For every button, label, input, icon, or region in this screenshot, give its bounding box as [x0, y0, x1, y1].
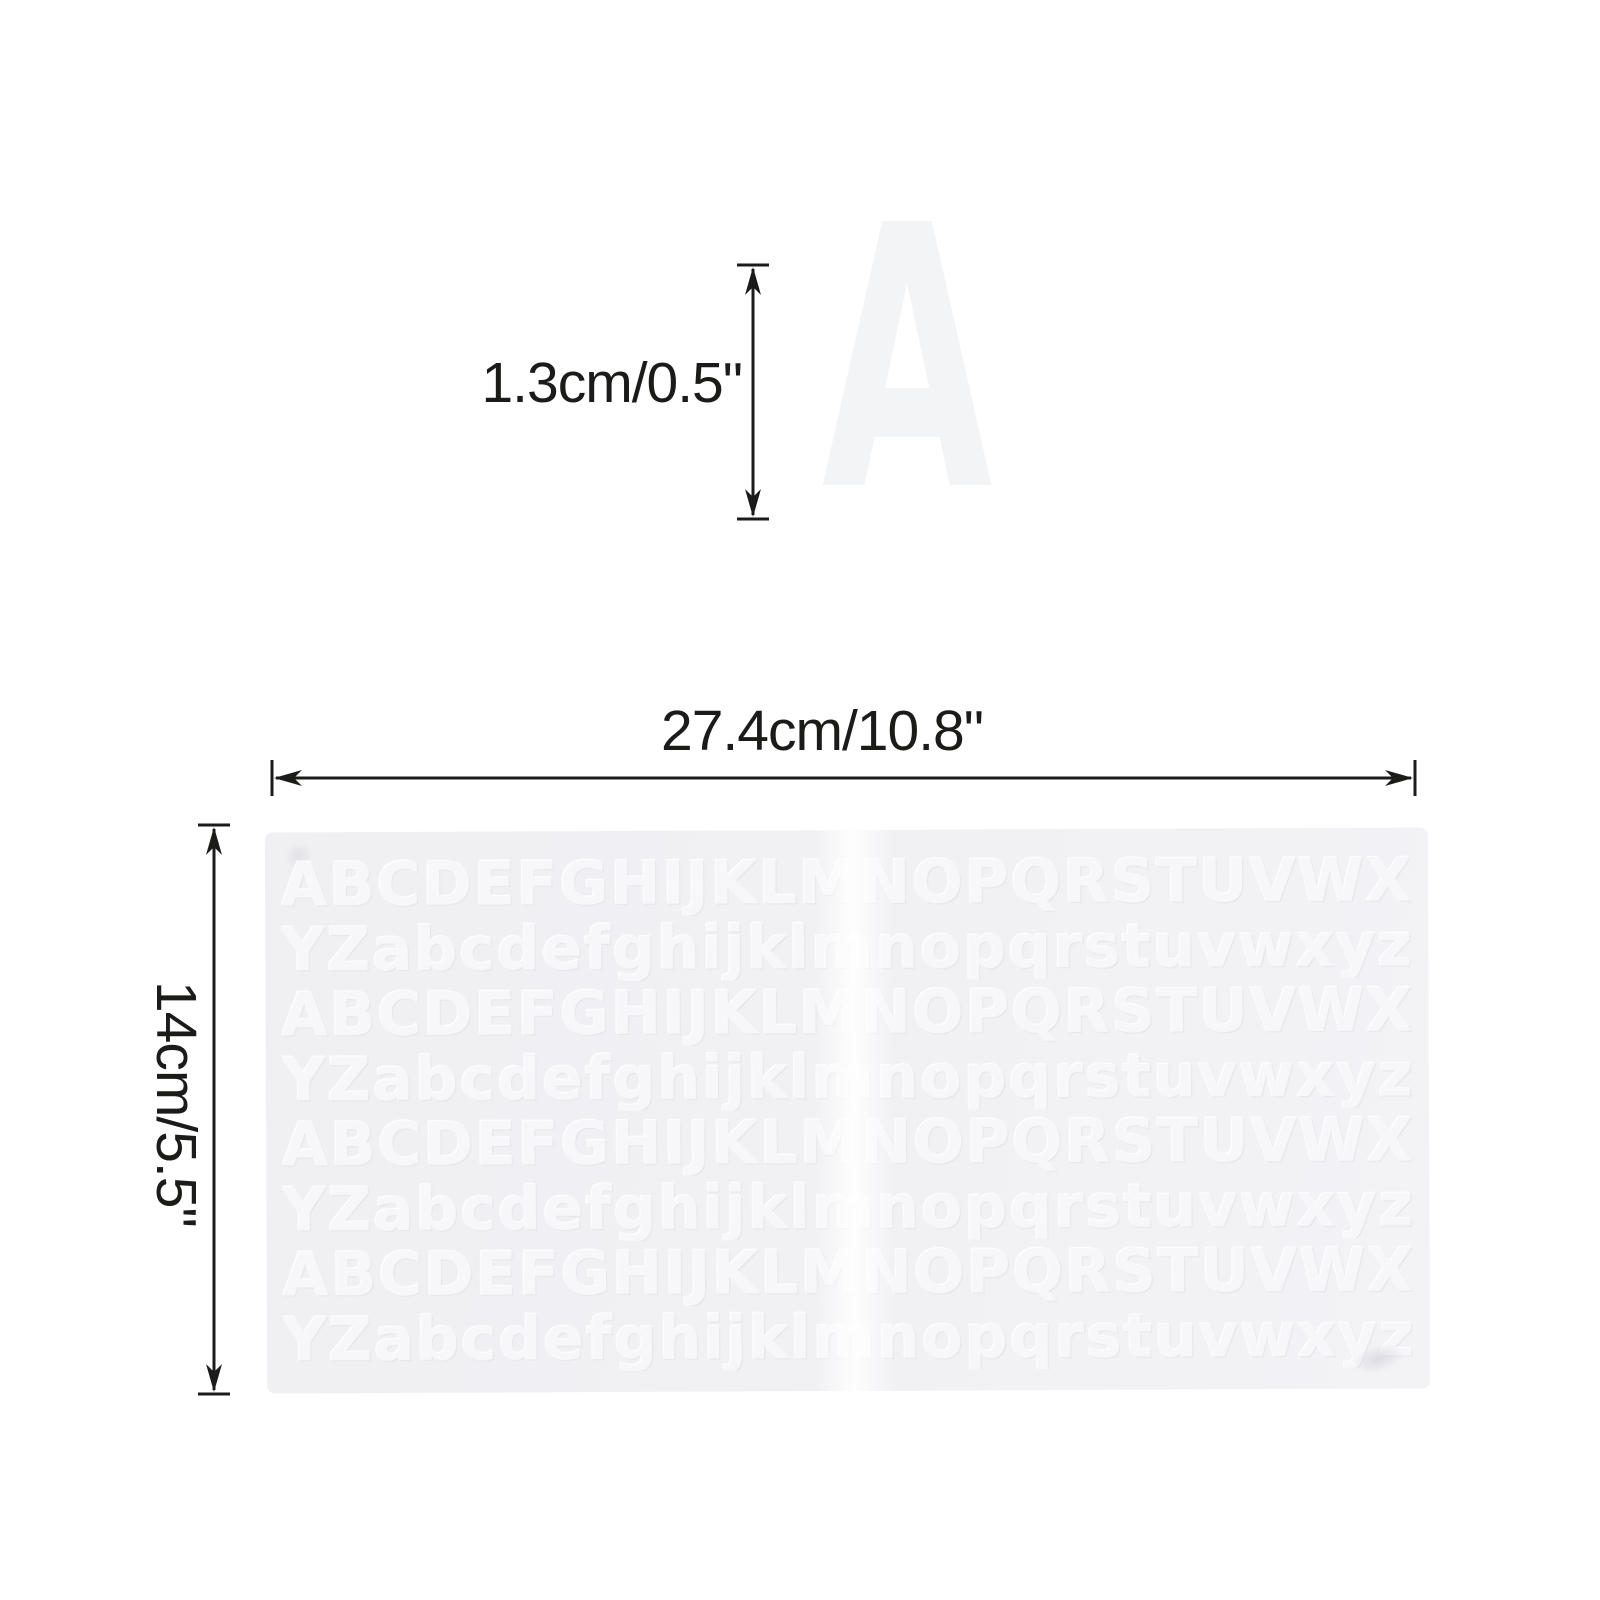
- sticker-letter: d: [497, 919, 540, 979]
- sticker-letter: V: [1250, 1111, 1297, 1171]
- sticker-letter: i: [703, 1308, 724, 1368]
- sticker-letter: N: [862, 1242, 912, 1302]
- sticker-letter: a: [373, 1049, 414, 1109]
- sticker-letter: M: [800, 1112, 860, 1172]
- sticker-letter: N: [860, 852, 910, 912]
- sticker-letter: P: [966, 1112, 1010, 1172]
- sticker-letter: m: [811, 917, 874, 977]
- sticker-letter: K: [711, 983, 758, 1043]
- sticker-letter: N: [861, 982, 911, 1042]
- sticker-letter: x: [1297, 1305, 1336, 1365]
- sticker-letter: o: [921, 1047, 962, 1107]
- sticker-letter: q: [1009, 1047, 1052, 1107]
- sticker-letter: m: [812, 1177, 875, 1237]
- sticker-letter: f: [585, 1179, 611, 1239]
- sticker-sheet: ABCDEFGHIJKLMNOPQRSTUVWX YZabcdefghijklm…: [265, 827, 1430, 1393]
- sheet-height-label: 14cm/5.5": [147, 981, 207, 1221]
- sticker-letter: q: [1009, 1177, 1052, 1237]
- sticker-letter: c: [460, 1049, 496, 1109]
- sticker-letter: a: [374, 1309, 415, 1369]
- sticker-letter: P: [965, 982, 1009, 1042]
- sticker-letter: Z: [328, 1180, 372, 1240]
- sticker-letter: b: [414, 919, 457, 979]
- sticker-letter: H: [611, 1113, 661, 1173]
- letter-row-lowercase: YZabcdefghijklmnopqrstuvwxyz: [281, 913, 1412, 983]
- sticker-letter: X: [1366, 980, 1413, 1040]
- sticker-letter: C: [377, 854, 421, 914]
- sticker-letter: W: [1298, 980, 1364, 1040]
- sticker-letter: i: [702, 918, 723, 978]
- sticker-letter: Q: [1010, 852, 1061, 912]
- sticker-letter: i: [702, 1048, 723, 1108]
- sticker-letter: l: [790, 1178, 811, 1238]
- sticker-letter: B: [330, 1115, 376, 1175]
- sticker-letter: C: [377, 984, 421, 1044]
- product-dimension-diagram: A 1.3cm/0.5" 27.4cm/10.8" 14cm/5.5" ABCD…: [0, 0, 1600, 1600]
- sample-height-label: 1.3cm/0.5": [430, 352, 742, 415]
- sticker-letter: X: [1365, 850, 1412, 910]
- sticker-letter: K: [712, 1243, 759, 1303]
- sticker-letter: f: [586, 1309, 612, 1369]
- sticker-letter: T: [1156, 851, 1197, 911]
- sticker-letter: R: [1064, 981, 1110, 1041]
- sticker-letter: D: [423, 984, 473, 1044]
- sticker-letter: J: [687, 983, 710, 1043]
- letter-row-lowercase: YZabcdefghijklmnopqrstuvwxyz: [282, 1173, 1413, 1243]
- sticker-letter: g: [614, 1308, 657, 1368]
- sticker-letter: R: [1065, 1241, 1111, 1301]
- sticker-letter: E: [474, 984, 515, 1044]
- sticker-letter-grid: ABCDEFGHIJKLMNOPQRSTUVWX YZabcdefghijklm…: [265, 827, 1430, 1393]
- sticker-letter: Y: [283, 1310, 327, 1370]
- sticker-letter: v: [1198, 1176, 1237, 1236]
- sticker-letter: p: [963, 917, 1006, 977]
- sticker-letter: n: [876, 1177, 919, 1237]
- sticker-letter: u: [1153, 916, 1196, 976]
- sticker-letter: W: [1297, 850, 1363, 910]
- sticker-letter: X: [1367, 1240, 1414, 1300]
- sticker-letter: E: [475, 1114, 516, 1174]
- sticker-letter: H: [612, 1243, 662, 1303]
- sticker-letter: S: [1112, 981, 1155, 1041]
- sticker-letter: R: [1064, 1111, 1110, 1171]
- sticker-letter: y: [1337, 1175, 1376, 1235]
- sticker-letter: T: [1157, 981, 1198, 1041]
- sticker-letter: u: [1153, 1046, 1196, 1106]
- sticker-letter: z: [1379, 1305, 1414, 1365]
- sticker-letter: j: [725, 1048, 746, 1108]
- sticker-letter: t: [1124, 1306, 1153, 1366]
- sheet-width-dimension-line: [270, 758, 1417, 798]
- sticker-letter: z: [1377, 915, 1412, 975]
- sticker-letter: b: [415, 1049, 458, 1109]
- sticker-letter: s: [1085, 1176, 1121, 1236]
- sticker-letter: Y: [282, 1180, 326, 1240]
- sheet-width-label: 27.4cm/10.8": [622, 700, 1022, 763]
- sample-sticker-letter: A: [822, 180, 993, 542]
- sticker-letter: z: [1378, 1045, 1413, 1105]
- sticker-letter: t: [1123, 1046, 1152, 1106]
- sticker-letter: x: [1296, 1045, 1335, 1105]
- sticker-letter: n: [877, 1307, 920, 1367]
- sticker-letter: k: [748, 1308, 788, 1368]
- sticker-letter: f: [584, 919, 610, 979]
- sticker-letter: d: [498, 1179, 541, 1239]
- sticker-letter: U: [1200, 1111, 1249, 1171]
- sticker-letter: s: [1084, 916, 1120, 976]
- sticker-letter: Y: [282, 1050, 326, 1110]
- sticker-letter: l: [789, 1048, 810, 1108]
- sticker-letter: r: [1053, 1046, 1083, 1106]
- sticker-letter: P: [965, 852, 1009, 912]
- sticker-letter: T: [1158, 1241, 1199, 1301]
- sticker-letter: K: [712, 1113, 759, 1173]
- sticker-letter: v: [1198, 1046, 1237, 1106]
- sticker-letter: A: [281, 855, 328, 915]
- sticker-letter: m: [813, 1307, 876, 1367]
- sticker-letter: U: [1199, 851, 1248, 911]
- sticker-letter: s: [1085, 1046, 1121, 1106]
- sticker-letter: D: [424, 1244, 474, 1304]
- sticker-letter: e: [543, 1309, 584, 1369]
- sticker-letter: O: [913, 982, 964, 1042]
- sticker-letter: I: [663, 983, 686, 1043]
- sticker-letter: K: [710, 853, 757, 913]
- sticker-letter: n: [876, 1047, 919, 1107]
- sticker-letter: H: [611, 983, 661, 1043]
- sticker-letter: y: [1338, 1305, 1377, 1365]
- sticker-letter: F: [517, 854, 558, 914]
- sticker-letter: R: [1063, 851, 1109, 911]
- sticker-letter: j: [726, 1308, 747, 1368]
- sticker-letter: p: [965, 1307, 1008, 1367]
- sticker-letter: C: [378, 1244, 422, 1304]
- sticker-letter: M: [799, 852, 859, 912]
- sticker-letter: h: [658, 1178, 701, 1238]
- sticker-letter: S: [1113, 1241, 1156, 1301]
- sticker-letter: l: [788, 918, 809, 978]
- sticker-letter: F: [518, 1244, 559, 1304]
- sticker-letter: w: [1239, 1176, 1295, 1236]
- sticker-letter: Z: [327, 920, 371, 980]
- sticker-letter: A: [281, 985, 328, 1045]
- sticker-letter: A: [283, 1245, 330, 1305]
- sticker-letter: J: [688, 1243, 711, 1303]
- sticker-letter: x: [1297, 1175, 1336, 1235]
- sticker-letter: P: [966, 1242, 1010, 1302]
- sticker-letter: p: [964, 1047, 1007, 1107]
- sticker-letter: Q: [1011, 982, 1062, 1042]
- sticker-letter: j: [725, 1178, 746, 1238]
- sticker-letter: A: [282, 1115, 329, 1175]
- sticker-letter: a: [372, 919, 413, 979]
- sticker-letter: c: [460, 1179, 496, 1239]
- sticker-letter: D: [422, 854, 472, 914]
- sticker-letter: B: [329, 855, 375, 915]
- sticker-letter: t: [1123, 1176, 1152, 1236]
- sticker-letter: F: [517, 984, 558, 1044]
- sticker-letter: G: [559, 854, 609, 914]
- sticker-letter: o: [920, 917, 961, 977]
- letter-row-uppercase: ABCDEFGHIJKLMNOPQRSTUVWX: [283, 1238, 1414, 1308]
- sticker-letter: I: [662, 853, 685, 913]
- sticker-letter: c: [461, 1309, 497, 1369]
- sticker-letter: L: [759, 983, 797, 1043]
- sticker-letter: b: [415, 1179, 458, 1239]
- sticker-letter: g: [613, 1048, 656, 1108]
- sticker-letter: Y: [281, 920, 325, 980]
- letter-row-uppercase: ABCDEFGHIJKLMNOPQRSTUVWX: [282, 1108, 1413, 1178]
- sticker-letter: E: [476, 1244, 517, 1304]
- letter-row-lowercase: YZabcdefghijklmnopqrstuvwxyz: [282, 1043, 1413, 1113]
- sticker-letter: Q: [1012, 1242, 1063, 1302]
- sticker-letter: V: [1250, 981, 1297, 1041]
- sticker-letter: r: [1054, 1176, 1084, 1236]
- sticker-letter: i: [703, 1178, 724, 1238]
- sticker-letter: F: [518, 1114, 559, 1174]
- sticker-letter: f: [585, 1049, 611, 1109]
- sticker-letter: L: [760, 1243, 798, 1303]
- sticker-letter: h: [657, 918, 700, 978]
- sticker-letter: E: [474, 854, 515, 914]
- sticker-letter: X: [1366, 1110, 1413, 1170]
- sticker-letter: z: [1378, 1175, 1413, 1235]
- sticker-letter: G: [561, 1244, 611, 1304]
- sticker-letter: a: [373, 1179, 414, 1239]
- sticker-letter: V: [1249, 851, 1296, 911]
- sticker-letter: Z: [327, 1050, 371, 1110]
- sticker-letter: q: [1010, 1307, 1053, 1367]
- sticker-letter: v: [1199, 1306, 1238, 1366]
- sticker-letter: J: [687, 1113, 710, 1173]
- sticker-letter: b: [416, 1309, 459, 1369]
- sticker-letter: O: [913, 1112, 964, 1172]
- sticker-letter: k: [747, 1048, 787, 1108]
- sticker-letter: d: [497, 1049, 540, 1109]
- sticker-letter: I: [664, 1243, 687, 1303]
- letter-row-uppercase: ABCDEFGHIJKLMNOPQRSTUVWX: [281, 978, 1412, 1048]
- sticker-letter: T: [1157, 1111, 1198, 1171]
- sticker-letter: e: [542, 1049, 583, 1109]
- sticker-letter: B: [331, 1245, 377, 1305]
- sticker-letter: e: [543, 1179, 584, 1239]
- sticker-letter: j: [724, 918, 745, 978]
- sticker-letter: J: [686, 853, 709, 913]
- sticker-letter: x: [1296, 915, 1335, 975]
- sticker-letter: w: [1239, 1046, 1295, 1106]
- sticker-letter: v: [1197, 916, 1236, 976]
- sticker-letter: r: [1055, 1306, 1085, 1366]
- sticker-letter: M: [799, 982, 859, 1042]
- sticker-letter: N: [861, 1112, 911, 1172]
- sticker-letter: o: [921, 1177, 962, 1237]
- sticker-letter: D: [423, 1114, 473, 1174]
- sticker-letter: m: [811, 1047, 874, 1107]
- sticker-letter: h: [659, 1308, 702, 1368]
- sticker-letter: d: [498, 1309, 541, 1369]
- sticker-letter: S: [1111, 851, 1154, 911]
- sticker-letter: u: [1154, 1176, 1197, 1236]
- sticker-letter: M: [800, 1242, 860, 1302]
- sticker-letter: n: [875, 917, 918, 977]
- sticker-letter: y: [1336, 915, 1375, 975]
- sticker-letter: H: [610, 853, 660, 913]
- sticker-letter: G: [560, 1114, 610, 1174]
- sticker-letter: w: [1240, 1306, 1296, 1366]
- sticker-letter: r: [1053, 916, 1083, 976]
- sticker-letter: L: [760, 1113, 798, 1173]
- sticker-letter: s: [1086, 1306, 1122, 1366]
- sticker-letter: k: [747, 918, 787, 978]
- sticker-letter: g: [613, 1178, 656, 1238]
- sticker-letter: G: [560, 984, 610, 1044]
- letter-row-lowercase: YZabcdefghijklmnopqrstuvwxyz: [283, 1303, 1414, 1373]
- sticker-letter: W: [1299, 1110, 1365, 1170]
- sticker-letter: k: [748, 1178, 788, 1238]
- sticker-letter: I: [663, 1113, 686, 1173]
- sticker-letter: O: [914, 1242, 965, 1302]
- sticker-letter: q: [1008, 917, 1051, 977]
- letter-row-uppercase: ABCDEFGHIJKLMNOPQRSTUVWX: [281, 848, 1412, 918]
- sticker-letter: Q: [1012, 1112, 1063, 1172]
- sticker-letter: o: [922, 1307, 963, 1367]
- sticker-letter: V: [1251, 1241, 1298, 1301]
- sticker-letter: u: [1154, 1306, 1197, 1366]
- sticker-letter: y: [1337, 1045, 1376, 1105]
- sticker-letter: c: [459, 919, 495, 979]
- sticker-letter: e: [542, 919, 583, 979]
- sticker-letter: B: [330, 985, 376, 1045]
- sticker-letter: L: [759, 853, 797, 913]
- sticker-letter: W: [1299, 1240, 1365, 1300]
- sticker-letter: Z: [328, 1310, 372, 1370]
- sticker-letter: g: [612, 918, 655, 978]
- sticker-letter: l: [790, 1308, 811, 1368]
- sticker-letter: p: [964, 1177, 1007, 1237]
- sticker-letter: S: [1112, 1111, 1155, 1171]
- sticker-letter: C: [378, 1114, 422, 1174]
- sticker-letter: O: [912, 852, 963, 912]
- sticker-letter: w: [1238, 916, 1294, 976]
- sticker-letter: U: [1200, 1241, 1249, 1301]
- sticker-letter: t: [1122, 916, 1151, 976]
- sticker-letter: U: [1199, 981, 1248, 1041]
- sticker-letter: h: [658, 1048, 701, 1108]
